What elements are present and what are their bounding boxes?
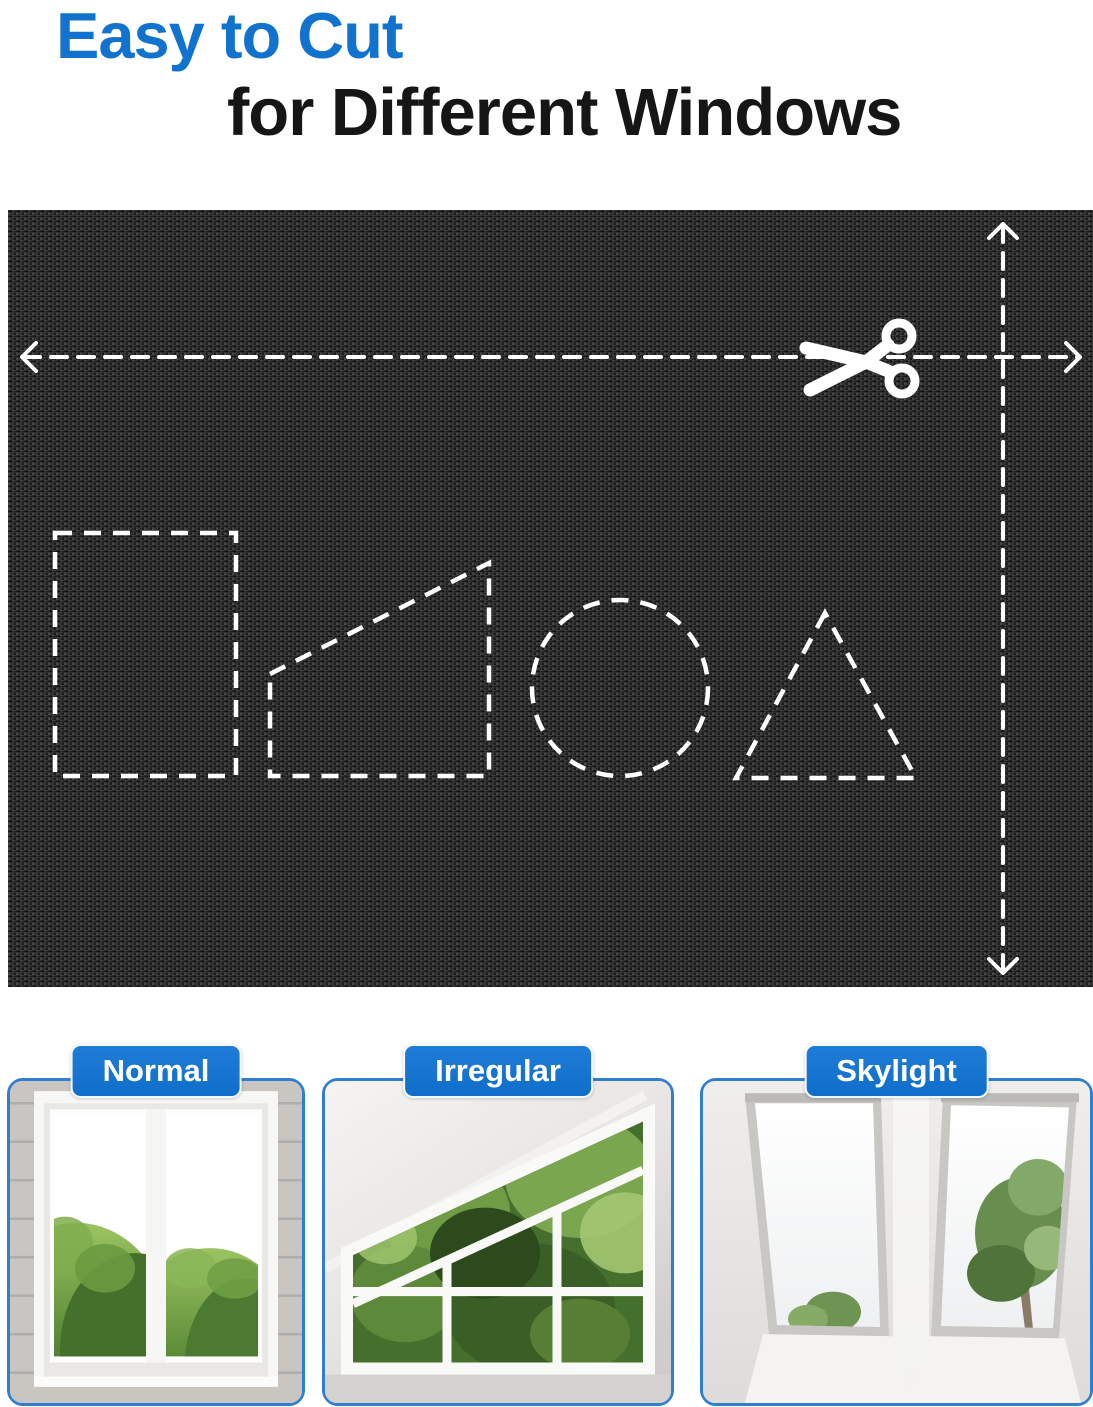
irregular-window-photo [325, 1081, 671, 1403]
normal-label-badge: Normal [71, 1044, 242, 1098]
window-card-normal: Normal [7, 1078, 305, 1406]
product-infographic: Easy to Cut for Different Windows [0, 0, 1093, 1407]
window-card-irregular: Irregular [322, 1078, 674, 1406]
skylight-label-badge: Skylight [804, 1044, 989, 1098]
blackout-fabric-panel [8, 210, 1093, 987]
cut-shape-trapezoid [270, 563, 489, 776]
horizontal-cut-arrow [22, 343, 1080, 371]
page-title: Easy to Cut [56, 0, 403, 72]
irregular-label-badge: Irregular [403, 1044, 593, 1098]
skylight-window-photo [703, 1081, 1090, 1403]
cut-shape-circle [532, 600, 708, 776]
cut-shape-rectangle [55, 533, 236, 776]
page-subtitle: for Different Windows [227, 76, 901, 150]
normal-window-photo [10, 1081, 302, 1403]
window-card-skylight: Skylight [700, 1078, 1093, 1406]
cut-guides-overlay [8, 210, 1093, 987]
vertical-cut-arrow [989, 224, 1017, 973]
cut-shape-triangle [736, 613, 916, 778]
